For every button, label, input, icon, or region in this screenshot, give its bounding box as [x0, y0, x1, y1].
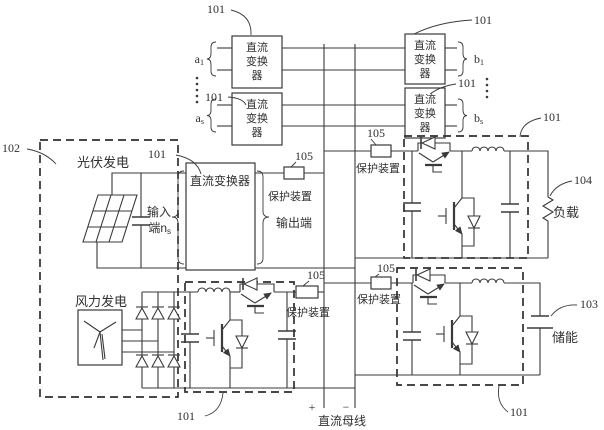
storage-top-igbt: [413, 269, 445, 304]
load-lower-igbt: [438, 151, 480, 258]
dc-converter-box-b1: 直流 变换 器: [405, 34, 445, 84]
solar-panel-icon: [83, 195, 137, 242]
string-converters: 直流 变换 器 直流 变换 器 直流 变换 器 直流 变换 器: [195, 2, 492, 145]
dc-converter-box-b2: 直流 变换 器: [405, 88, 445, 138]
wind-source-label: 风力发电: [75, 294, 127, 309]
brace-a1: [207, 42, 216, 76]
group-a1-label: a1: [195, 52, 204, 67]
storage-input-capacitor: [403, 283, 421, 375]
output-terminal-label: 输出端: [276, 215, 312, 230]
ref-105-wind: 105: [307, 268, 325, 282]
ref-105-storage: 105: [377, 261, 395, 275]
load-top-igbt: [418, 137, 450, 172]
svg-text:器: 器: [252, 69, 263, 82]
svg-text:器: 器: [420, 67, 431, 80]
svg-text:变换: 变换: [246, 111, 268, 125]
pv-source-label: 光伏发电: [77, 155, 129, 170]
pv-input-capacitor: [132, 173, 150, 268]
protection-device-wind-label: 保护装置: [286, 305, 330, 319]
wind-input-capacitor: [181, 292, 199, 388]
svg-text:变换: 变换: [246, 54, 268, 68]
wind-inductor: [198, 288, 230, 292]
wind-top-igbt: [240, 278, 274, 313]
ref-101-storage-converter: 101: [510, 405, 528, 419]
circuit-diagram: + − 直流母线 直流 变换 器 直流 变换 器: [0, 0, 604, 430]
load-converter-box: [403, 136, 528, 258]
svg-text:变换: 变换: [414, 106, 436, 120]
pv-dc-converter-label: 直流变换器: [190, 173, 250, 188]
svg-text:直流: 直流: [246, 97, 268, 111]
svg-text:直流: 直流: [414, 92, 436, 106]
ellipsis-a: [196, 77, 199, 104]
pv-dc-converter-box: 直流变换器: [186, 163, 255, 270]
dc-converter-box-a1: 直流 变换 器: [232, 36, 282, 88]
svg-text:直流: 直流: [414, 38, 436, 52]
group-b1-label: b1: [474, 52, 484, 67]
ellipsis-b: [486, 78, 489, 99]
output-brace: [257, 171, 269, 264]
ref-104: 104: [574, 173, 592, 187]
storage-branch: 105 保护装置: [324, 261, 598, 419]
storage-lower-igbt: [436, 283, 478, 375]
ref-101-load-converter: 101: [543, 110, 561, 124]
protection-device-load-label: 保护装置: [356, 161, 400, 175]
group-as-label: as: [196, 111, 204, 126]
input-terminal-label-1: 输入: [147, 204, 171, 219]
svg-text:器: 器: [252, 126, 263, 139]
bus-minus-label: −: [343, 400, 350, 414]
storage-label: 储能: [552, 330, 578, 345]
pv-branch: 光伏发电 输入 端ns 直流变换器 101 输: [77, 147, 355, 270]
svg-text:器: 器: [420, 121, 431, 134]
bus-plus-label: +: [309, 400, 316, 414]
ref-101-wind-converter: 101: [177, 409, 195, 423]
input-terminal-label-2: 端ns: [148, 221, 171, 236]
ref-105-load: 105: [367, 126, 385, 140]
protection-device-storage-label: 保护装置: [357, 292, 401, 306]
brace-b2: [458, 99, 467, 132]
dc-bus-label: 直流母线: [318, 414, 366, 428]
svg-text:变换: 变换: [414, 52, 436, 66]
dc-converter-box-a2: 直流 变换 器: [232, 93, 282, 145]
load-label: 负载: [553, 205, 579, 220]
storage-inductor: [472, 279, 504, 283]
protection-device-pv: 105 保护装置: [268, 149, 313, 203]
storage-converter-box: [397, 268, 523, 385]
load-input-capacitor: [403, 151, 421, 258]
group-bs-label: bs: [474, 111, 483, 126]
svg-text:直流: 直流: [246, 40, 268, 54]
ref-101-a2: 101: [205, 90, 223, 104]
load-inductor: [472, 147, 504, 151]
protection-device-pv-label: 保护装置: [268, 189, 312, 203]
ref-101-b1: 101: [474, 13, 492, 27]
ref-101-a1: 101: [207, 2, 225, 16]
ref-101-b2: 101: [458, 76, 476, 90]
wind-converter-box: [181, 278, 296, 392]
rectifier-bridge: [136, 292, 180, 388]
ref-101-pv-converter: 101: [148, 147, 166, 161]
dc-bus: + − 直流母线: [309, 44, 366, 428]
ref-103: 103: [580, 297, 598, 311]
ref-105-pv: 105: [295, 149, 313, 163]
wind-turbine-icon: [78, 310, 122, 365]
brace-b1: [458, 42, 467, 76]
wind-lower-igbt: [206, 292, 248, 388]
ref-102: 102: [2, 141, 20, 155]
protection-device-wind: 105 保护装置: [286, 268, 330, 319]
load-output-capacitor: [501, 151, 519, 258]
patent-circuit-figure: + − 直流母线 直流 变换 器 直流 变换 器: [0, 0, 604, 430]
